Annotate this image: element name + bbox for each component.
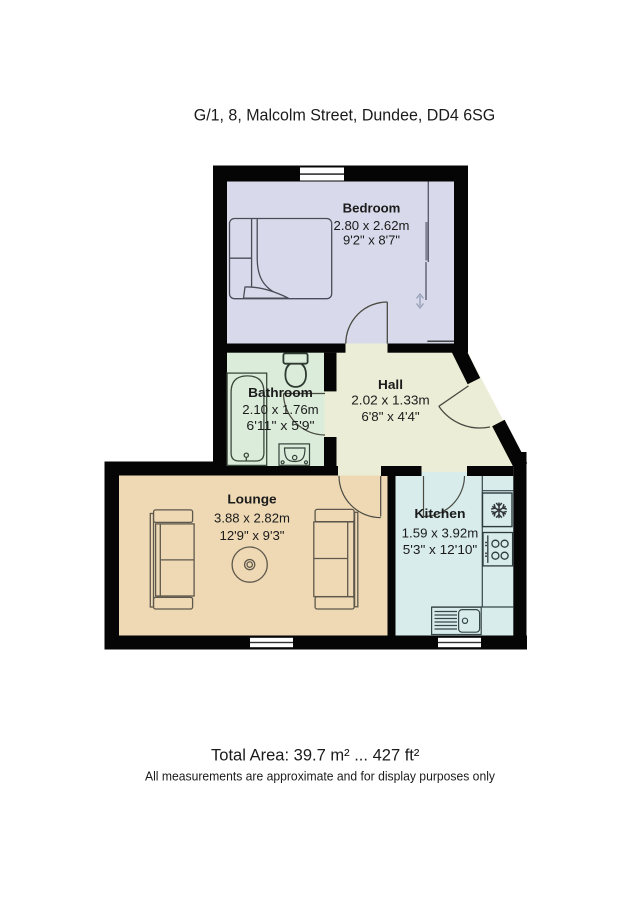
svg-text:Hall: Hall	[378, 377, 403, 392]
svg-text:Lounge: Lounge	[227, 492, 276, 507]
svg-text:All measurements are approxima: All measurements are approximate and for…	[145, 769, 496, 784]
svg-text:12'9" x 9'3": 12'9" x 9'3"	[220, 528, 285, 543]
svg-text:2.02 x 1.33m: 2.02 x 1.33m	[351, 393, 430, 408]
svg-text:6'8" x 4'4": 6'8" x 4'4"	[361, 409, 419, 424]
svg-text:2.80 x 2.62m: 2.80 x 2.62m	[334, 218, 410, 233]
svg-text:1.59 x 3.92m: 1.59 x 3.92m	[402, 526, 479, 541]
svg-text:2.10 x 1.76m: 2.10 x 1.76m	[242, 402, 318, 417]
svg-text:Bathroom: Bathroom	[248, 385, 313, 400]
svg-text:Kitchen: Kitchen	[414, 506, 465, 521]
svg-text:Bedroom: Bedroom	[343, 201, 401, 216]
svg-text:Total Area: 39.7 m² ... 427 ft: Total Area: 39.7 m² ... 427 ft²	[211, 746, 420, 765]
svg-text:5'3" x 12'10": 5'3" x 12'10"	[403, 542, 478, 557]
svg-text:3.88 x 2.82m: 3.88 x 2.82m	[214, 511, 290, 526]
svg-text:6'11" x 5'9": 6'11" x 5'9"	[246, 418, 314, 433]
svg-text:9'2" x 8'7": 9'2" x 8'7"	[343, 232, 400, 247]
svg-text:G/1, 8, Malcolm Street, Dundee: G/1, 8, Malcolm Street, Dundee, DD4 6SG	[194, 107, 496, 125]
